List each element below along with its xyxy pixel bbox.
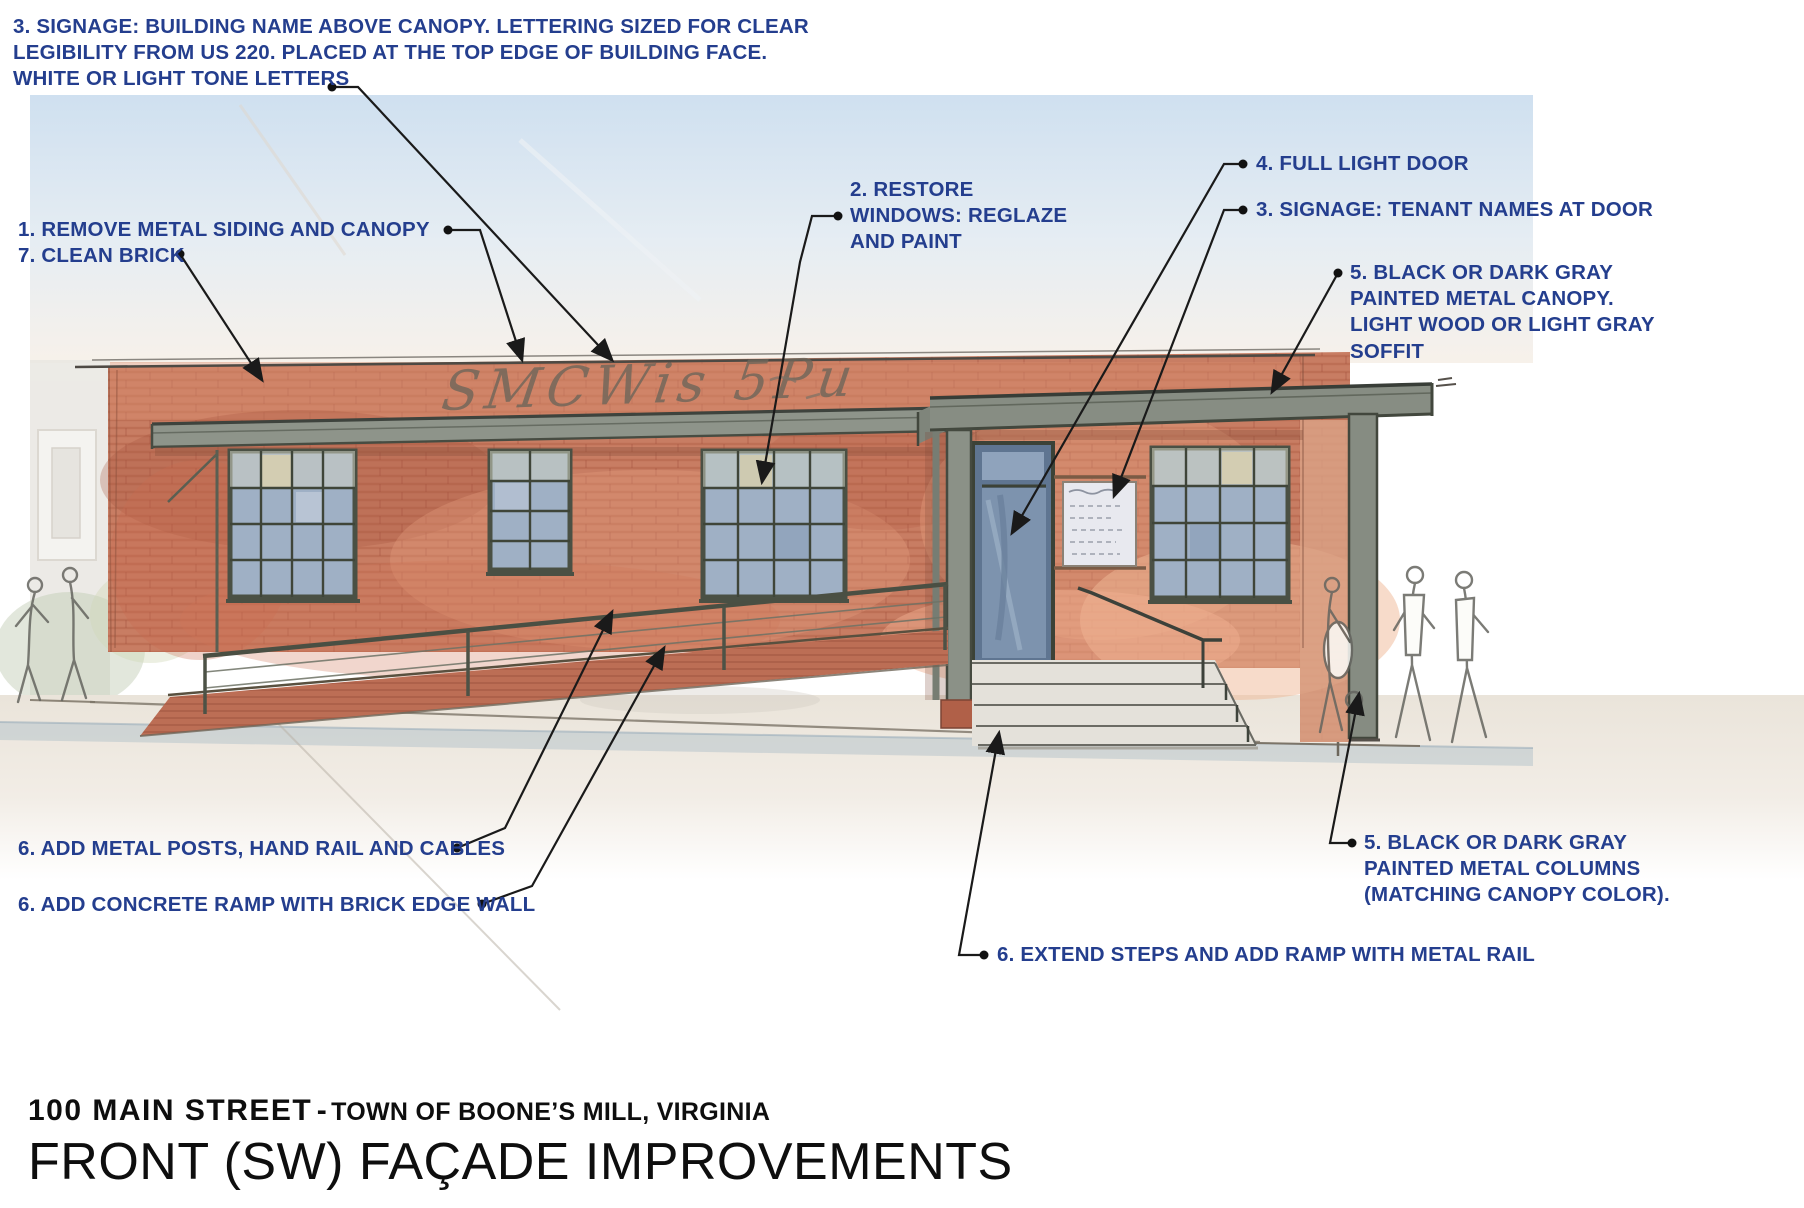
note-columns: 5. BLACK OR DARK GRAY PAINTED METAL COLU… — [1364, 830, 1694, 909]
tenant-sign-panel — [1054, 477, 1146, 568]
note-restore-windows: 2. RESTORE WINDOWS: REGLAZE AND PAINT — [850, 177, 1085, 256]
street-address: 100 MAIN STREET — [28, 1094, 312, 1127]
note-tenant-signage: 3. SIGNAGE: TENANT NAMES AT DOOR — [1256, 197, 1653, 223]
window-4 — [1148, 448, 1292, 602]
window-1 — [226, 451, 360, 601]
title-separator: - — [317, 1094, 327, 1127]
note-remove-siding: 1. REMOVE METAL SIDING AND CANOPY — [18, 217, 430, 243]
note-concrete-ramp: 6. ADD CONCRETE RAMP WITH BRICK EDGE WAL… — [18, 892, 535, 918]
note-clean-brick: 7. CLEAN BRICK — [18, 243, 185, 269]
note-building-signage: 3. SIGNAGE: BUILDING NAME ABOVE CANOPY. … — [13, 14, 813, 93]
sheet-address-line: 100 MAIN STREET - TOWN OF BOONE’S MILL, … — [28, 1094, 1013, 1128]
title-block: 100 MAIN STREET - TOWN OF BOONE’S MILL, … — [28, 1094, 1013, 1192]
window-2 — [486, 451, 574, 574]
entry-door — [973, 443, 1053, 665]
facade-improvement-sheet: SMCWis 5Pu — [0, 0, 1804, 1208]
sheet-title: FRONT (SW) FAÇADE IMPROVEMENTS — [28, 1132, 1013, 1192]
note-metal-posts: 6. ADD METAL POSTS, HAND RAIL AND CABLES — [18, 836, 505, 862]
note-extend-steps: 6. EXTEND STEPS AND ADD RAMP WITH METAL … — [997, 942, 1535, 968]
town-name: TOWN OF BOONE’S MILL, VIRGINIA — [331, 1098, 770, 1126]
note-full-light-door: 4. FULL LIGHT DOOR — [1256, 151, 1469, 177]
window-3 — [699, 451, 849, 601]
note-canopy: 5. BLACK OR DARK GRAY PAINTED METAL CANO… — [1350, 260, 1680, 365]
